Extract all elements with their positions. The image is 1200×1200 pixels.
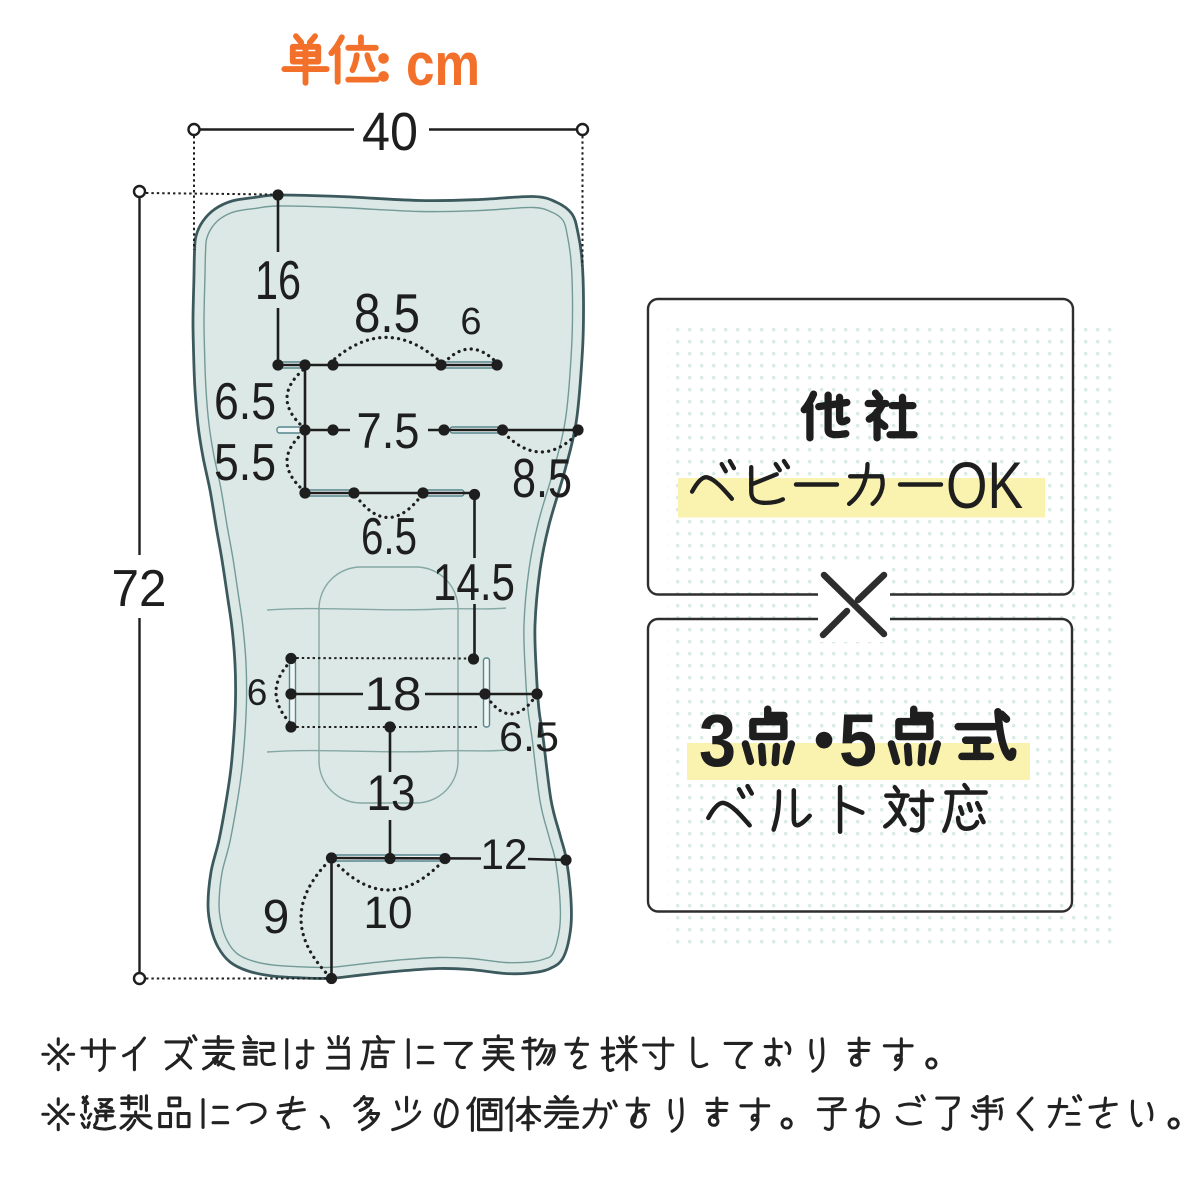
svg-text:OK: OK (946, 448, 1023, 522)
svg-text:6: 6 (460, 301, 481, 343)
svg-text:5.5: 5.5 (214, 434, 276, 492)
svg-text:14.5: 14.5 (433, 554, 515, 612)
svg-text:3: 3 (699, 699, 736, 782)
svg-text:18: 18 (365, 667, 422, 720)
svg-text:9: 9 (263, 891, 290, 944)
svg-text:10: 10 (364, 887, 413, 938)
svg-text:cm: cm (406, 31, 480, 98)
svg-text:6.5: 6.5 (361, 508, 417, 566)
svg-text:8.5: 8.5 (512, 447, 572, 509)
svg-text:16: 16 (255, 249, 301, 311)
svg-text:72: 72 (112, 560, 167, 618)
svg-text:5: 5 (839, 699, 877, 782)
svg-text:6: 6 (247, 672, 268, 713)
svg-text:40: 40 (362, 102, 418, 162)
svg-text:8.5: 8.5 (354, 282, 420, 344)
svg-text:13: 13 (367, 765, 416, 821)
svg-text:7.5: 7.5 (357, 403, 420, 459)
svg-text:6.5: 6.5 (499, 713, 559, 760)
svg-text:6.5: 6.5 (214, 373, 276, 431)
svg-text:12: 12 (481, 831, 528, 879)
